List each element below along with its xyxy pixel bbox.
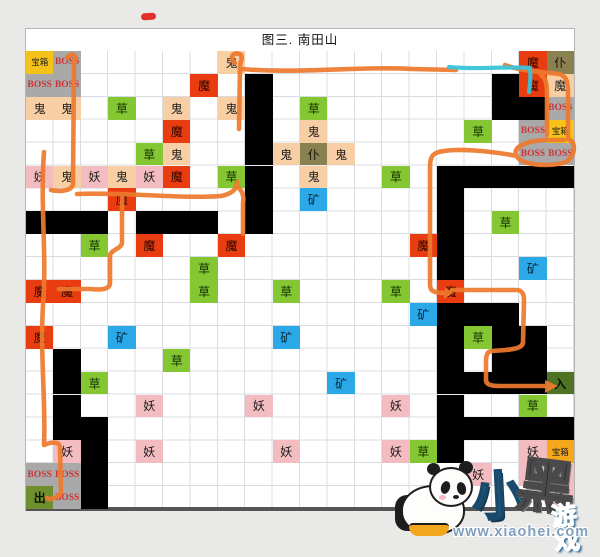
cell-devil: 魔 [26,280,53,303]
cell-ghost: 鬼 [300,120,327,143]
cell-demon: 妖 [81,166,108,189]
cell-entrance: 入 [547,372,574,395]
wall-block [245,143,272,166]
wall-block [437,326,464,349]
cell-grass: 草 [382,166,409,189]
cell-demon: 妖 [382,395,409,418]
cell-ghost: 鬼 [108,166,135,189]
wall-block [245,97,272,120]
panda-head [429,467,473,507]
wall-block [81,463,108,486]
cell-grass: 草 [136,143,163,166]
map-grid: 宝箱BOSS鬼魔仆BOSSBOSS魔魔魔鬼鬼草鬼鬼草BOSS魔鬼草BOSS宝箱草… [26,51,574,509]
wall-block [437,166,464,189]
cell-boss: BOSS [53,463,80,486]
wall-block [53,417,80,440]
cell-ore: 矿 [273,326,300,349]
wall-block [53,211,80,234]
cell-devil: 魔 [519,51,546,74]
wall-block [464,417,491,440]
cell-boss: BOSS [519,120,546,143]
cell-boss: BOSS [547,97,574,120]
cell-boss: BOSS [547,143,574,166]
cell-boss: BOSS [53,51,80,74]
cell-grass: 草 [273,280,300,303]
wall-block [547,166,574,189]
cell-demon: 妖 [245,395,272,418]
wall-block [437,188,464,211]
cell-servant: 仆 [300,143,327,166]
wall-block [437,211,464,234]
wall-block [519,372,546,395]
wall-block [53,372,80,395]
cell-demon: 妖 [136,166,163,189]
wall-block [245,74,272,97]
wall-block [492,74,519,97]
cell-devil: 魔 [26,326,53,349]
wall-block [245,166,272,189]
wall-block [519,97,546,120]
cell-ore: 矿 [327,372,354,395]
wall-block [492,97,519,120]
wall-block [464,166,491,189]
wall-block [492,372,519,395]
wall-block [136,211,163,234]
wall-block [245,120,272,143]
cell-boss: BOSS [26,74,53,97]
cell-boss: BOSS [53,74,80,97]
cell-devil: 魔 [136,234,163,257]
wall-block [437,395,464,418]
cell-demon: 妖 [26,166,53,189]
cell-ghost: 鬼 [53,166,80,189]
wall-block [53,395,80,418]
cell-grass: 草 [464,120,491,143]
cell-ghost: 魔 [547,74,574,97]
cell-ghost: 鬼 [273,143,300,166]
wall-block [547,417,574,440]
cell-servant: 仆 [547,51,574,74]
wall-block [437,234,464,257]
cell-ore: 矿 [300,188,327,211]
cell-exit: 出 [26,486,53,509]
cell-grass: 草 [81,372,108,395]
cell-devil: 魔 [53,280,80,303]
wall-block [245,188,272,211]
wall-block [519,166,546,189]
cell-ghost: 鬼 [163,143,190,166]
cell-devil: 魔 [163,166,190,189]
wall-block [437,349,464,372]
cell-devil: 魔 [163,120,190,143]
cell-devil: 魔 [410,234,437,257]
wall-block [492,303,519,326]
cell-boss: BOSS [53,486,80,509]
watermark: 小 黑 游戏 www.xiaohei.com [395,455,600,541]
cell-grass: 草 [382,280,409,303]
wall-block [492,417,519,440]
wall-block [519,326,546,349]
cell-demon: 妖 [53,440,80,463]
cell-grass: 草 [218,166,245,189]
wall-block [53,349,80,372]
cell-ghost: 鬼 [218,97,245,120]
cell-grass: 草 [163,349,190,372]
cell-grass: 草 [108,97,135,120]
panda-nose [453,495,459,499]
map-title: 图三. 南田山 [26,29,574,51]
wall-block [163,211,190,234]
wall-block [437,417,464,440]
cell-grass: 草 [464,326,491,349]
wall-block [519,349,546,372]
cell-ghost: 鬼 [218,51,245,74]
cell-ghost: 鬼 [26,97,53,120]
cell-devil: 魔 [437,280,464,303]
cell-demon: 妖 [136,395,163,418]
wall-block [437,257,464,280]
wall-block [492,326,519,349]
cell-ore: 矿 [108,326,135,349]
cell-chest: 宝箱 [547,120,574,143]
wall-block [245,211,272,234]
cell-grass: 草 [81,234,108,257]
cell-ore: 矿 [519,257,546,280]
cell-boss: BOSS [519,143,546,166]
cell-ghost: 鬼 [163,97,190,120]
cell-ore: 矿 [410,303,437,326]
cell-grass: 草 [492,211,519,234]
wall-block [464,303,491,326]
wall-block [437,372,464,395]
wall-block [492,166,519,189]
wall-block [26,211,53,234]
wall-block [81,417,108,440]
cell-demon: 妖 [273,440,300,463]
cell-chest: 宝箱 [26,51,53,74]
wall-block [437,303,464,326]
cell-boss: BOSS [26,463,53,486]
cell-grass: 草 [190,257,217,280]
cell-devil: 魔 [218,234,245,257]
wall-block [81,440,108,463]
wall-block [81,211,108,234]
wall-block [190,211,217,234]
cell-grass: 草 [300,97,327,120]
map-panel: 图三. 南田山 宝箱BOSS鬼魔仆BOSSBOSS魔魔魔鬼鬼草鬼鬼草BOSS魔鬼… [25,28,575,511]
wall-block [81,486,108,509]
cell-devil: 魔 [108,188,135,211]
cell-devil: 魔 [519,74,546,97]
red-pen-mark-top [141,12,156,20]
game-map-screenshot: { "page": { "title": "图三. 南田山" }, "palet… [0,0,600,541]
cell-grass: 草 [519,395,546,418]
panda-blush [439,495,446,500]
wall-block [519,417,546,440]
wall-block [464,372,491,395]
cell-grass: 草 [190,280,217,303]
cell-devil: 魔 [190,74,217,97]
wall-block [492,349,519,372]
cell-ghost: 鬼 [327,143,354,166]
cell-ghost: 鬼 [53,97,80,120]
cell-ghost: 鬼 [300,166,327,189]
cell-demon: 妖 [136,440,163,463]
watermark-url: www.xiaohei.com [453,525,589,540]
panda-shorts [409,523,449,536]
